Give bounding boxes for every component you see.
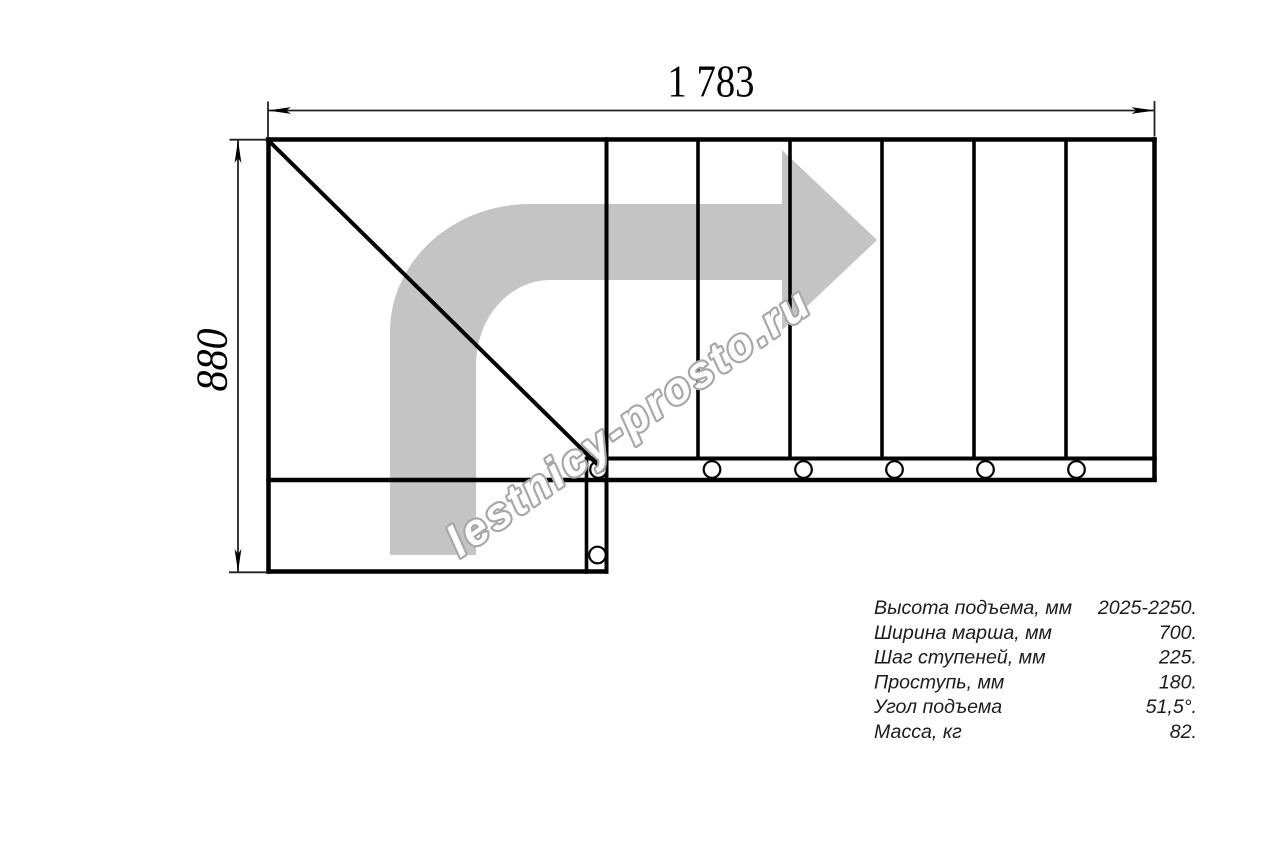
svg-text:Шаг ступеней, мм: Шаг ступеней, мм [874,647,1046,669]
svg-text:Масса, кг: Масса, кг [874,721,962,743]
svg-text:225.: 225. [1158,647,1197,669]
svg-text:Ширина марша, мм: Ширина марша, мм [874,622,1053,644]
svg-text:Угол подъема: Угол подъема [873,696,1002,718]
svg-text:180.: 180. [1159,671,1197,693]
svg-text:700.: 700. [1159,622,1197,644]
svg-text:Проступь, мм: Проступь, мм [874,671,1005,693]
svg-text:51,5°.: 51,5°. [1146,696,1197,718]
svg-text:1 783: 1 783 [668,57,755,107]
svg-text:2025-2250.: 2025-2250. [1097,597,1197,619]
svg-text:82.: 82. [1170,721,1197,743]
svg-text:lestnicy-prosto.ru: lestnicy-prosto.ru [438,279,818,566]
svg-text:880: 880 [188,329,237,392]
svg-text:Высота подъема, мм: Высота подъема, мм [874,597,1073,619]
